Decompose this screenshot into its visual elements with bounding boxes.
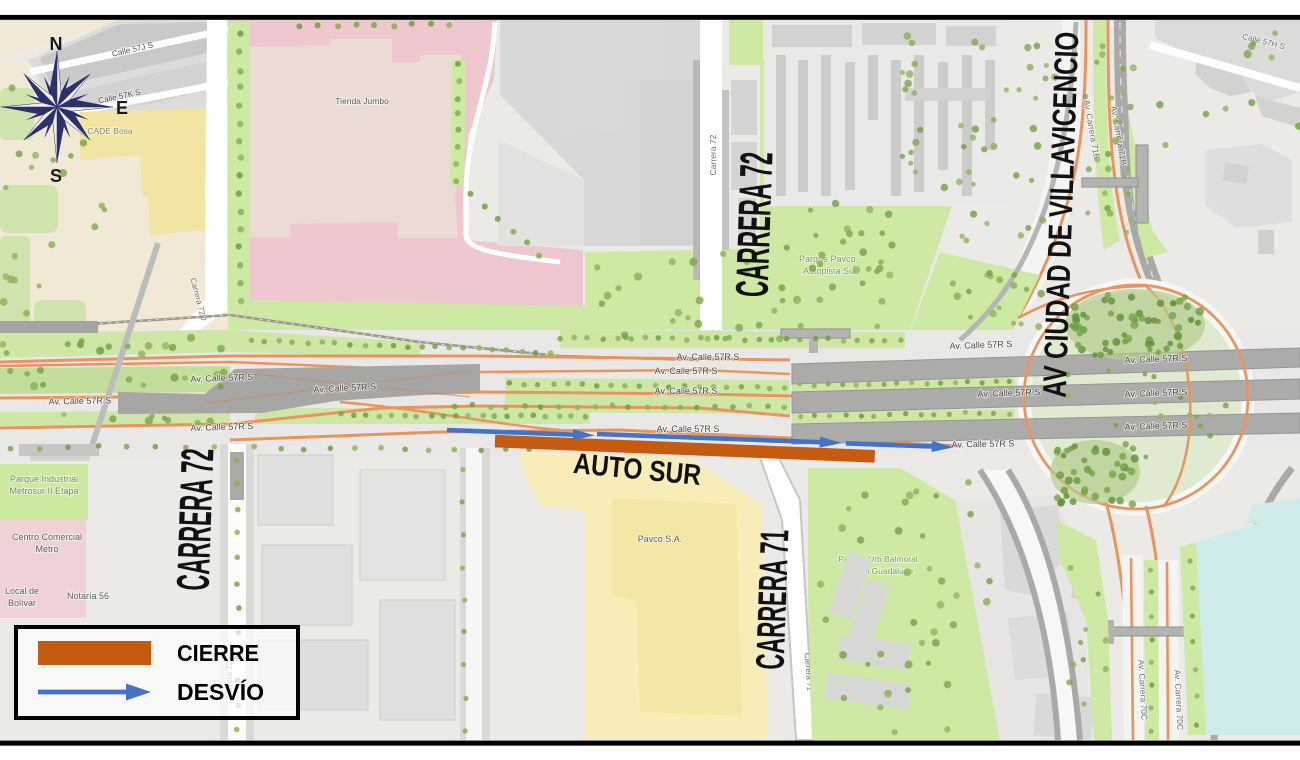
svg-text:Pavco S.A.: Pavco S.A. (638, 534, 683, 544)
svg-text:Metrosur II Etapa: Metrosur II Etapa (9, 486, 78, 496)
svg-text:S: S (50, 166, 62, 186)
svg-text:Av. Calle 57R S: Av. Calle 57R S (655, 386, 718, 396)
svg-text:Notaría 56: Notaría 56 (67, 591, 109, 601)
svg-text:CARRERA 72: CARRERA 72 (725, 151, 782, 298)
svg-text:Av. Calle 57R S: Av. Calle 57R S (952, 438, 1015, 449)
svg-text:Bolívar: Bolívar (8, 598, 36, 608)
svg-text:Local de: Local de (5, 586, 39, 596)
svg-text:CARRERA 72: CARRERA 72 (167, 448, 224, 592)
svg-text:Tienda Jumbo: Tienda Jumbo (335, 96, 389, 106)
svg-text:E: E (116, 98, 128, 118)
svg-text:Av. Calle 57R S: Av. Calle 57R S (655, 366, 718, 376)
svg-text:CARRERA 71: CARRERA 71 (749, 529, 798, 670)
svg-text:Av. Calle 57R S: Av. Calle 57R S (657, 424, 720, 434)
svg-text:Parque Pavco -: Parque Pavco - (799, 254, 861, 264)
svg-text:Metro: Metro (35, 544, 58, 554)
svg-text:Centro Comercial: Centro Comercial (12, 532, 82, 542)
svg-text:N: N (50, 34, 63, 54)
svg-text:Av. Calle 57R S: Av. Calle 57R S (49, 395, 112, 406)
svg-text:CIERRE: CIERRE (177, 640, 259, 666)
svg-text:DESVÍO: DESVÍO (177, 678, 264, 705)
svg-text:Parque Industrial: Parque Industrial (10, 474, 78, 484)
svg-text:CADE Bosa: CADE Bosa (87, 126, 133, 136)
svg-text:Av. Calle 57R S: Av. Calle 57R S (677, 352, 740, 362)
svg-text:Carrera 72: Carrera 72 (708, 134, 718, 175)
